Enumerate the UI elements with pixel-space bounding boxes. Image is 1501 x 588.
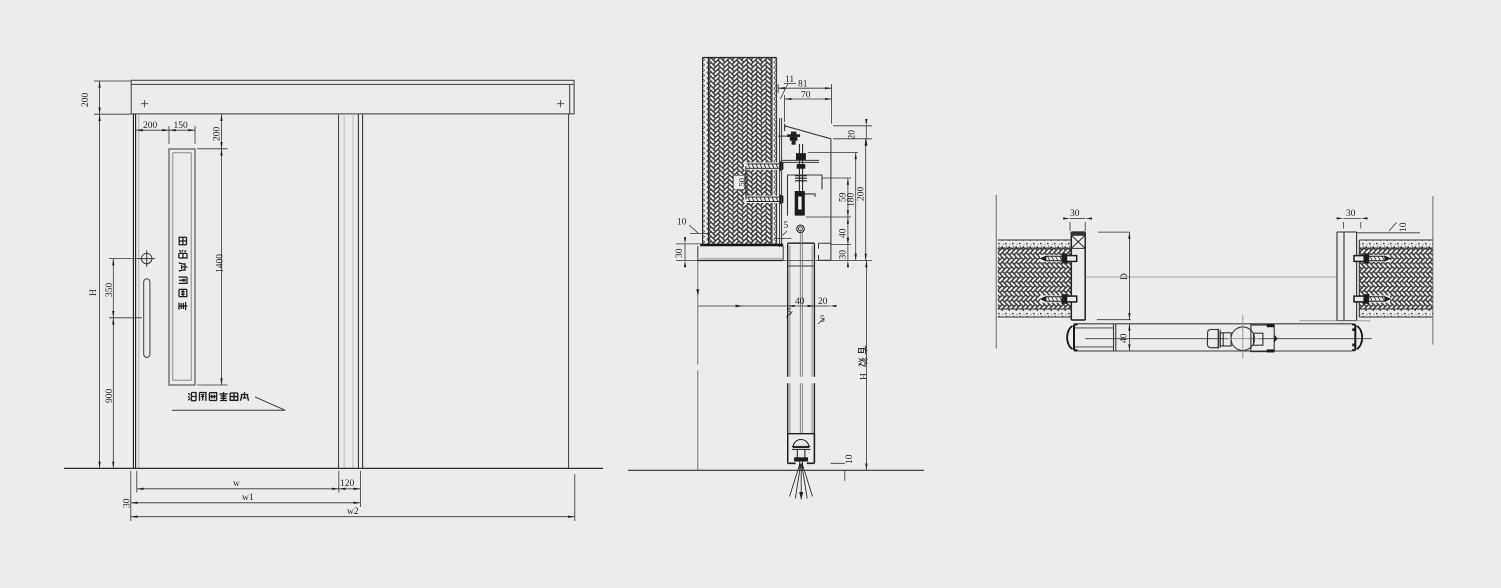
svg-text:81: 81: [798, 80, 808, 90]
svg-text:20: 20: [818, 297, 828, 307]
svg-text:w1: w1: [242, 493, 254, 503]
svg-text:30: 30: [675, 248, 685, 258]
svg-text:20: 20: [848, 130, 858, 140]
svg-text:120: 120: [340, 479, 355, 489]
svg-text:30: 30: [123, 498, 133, 508]
svg-text:10: 10: [845, 454, 855, 464]
svg-text:350: 350: [105, 283, 115, 298]
svg-text:200: 200: [857, 187, 867, 202]
svg-text:5: 5: [784, 221, 789, 231]
svg-text:200: 200: [143, 121, 158, 131]
svg-text:200: 200: [213, 127, 223, 142]
svg-text:200: 200: [81, 93, 91, 108]
svg-text:50: 50: [737, 178, 747, 187]
svg-text:H: H: [89, 289, 99, 296]
svg-text:70: 70: [801, 91, 811, 101]
svg-text:40: 40: [1120, 333, 1130, 343]
svg-text:D: D: [1120, 273, 1130, 280]
svg-text:180: 180: [847, 193, 857, 208]
svg-text:1400: 1400: [216, 254, 226, 273]
svg-text:40: 40: [795, 297, 805, 307]
svg-text:10: 10: [1399, 222, 1409, 232]
svg-text:900: 900: [105, 389, 115, 404]
svg-text:40: 40: [839, 228, 849, 238]
svg-text:30: 30: [1070, 209, 1080, 219]
svg-text:w2: w2: [347, 507, 359, 517]
svg-text:H: H: [860, 373, 870, 380]
svg-text:30: 30: [839, 250, 849, 260]
svg-text:10: 10: [677, 218, 687, 228]
svg-text:150: 150: [174, 121, 189, 131]
svg-text:w: w: [233, 479, 240, 489]
svg-text:30: 30: [1346, 209, 1356, 219]
